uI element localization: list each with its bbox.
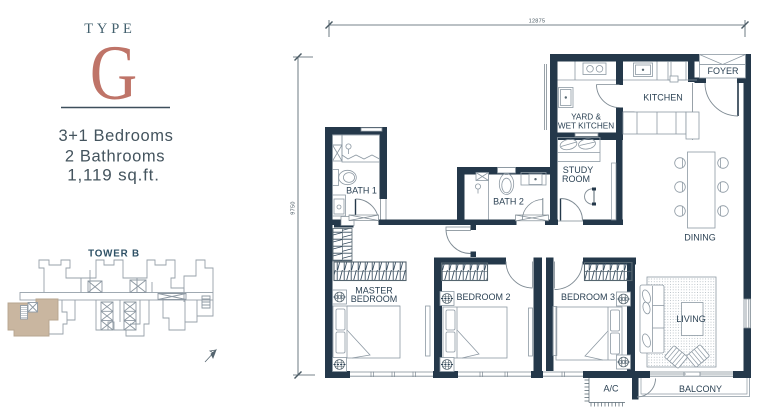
svg-text:A/C: A/C xyxy=(603,384,619,394)
svg-text:LIVING: LIVING xyxy=(676,314,706,324)
svg-text:1,119 sq.ft.: 1,119 sq.ft. xyxy=(67,166,159,185)
svg-text:BEDROOM: BEDROOM xyxy=(351,294,398,304)
svg-text:KITCHEN: KITCHEN xyxy=(643,93,683,103)
svg-text:WET KITCHEN: WET KITCHEN xyxy=(558,122,614,131)
svg-text:BEDROOM 2: BEDROOM 2 xyxy=(456,292,510,302)
svg-text:TOWER B: TOWER B xyxy=(88,249,140,260)
svg-text:FOYER: FOYER xyxy=(707,66,739,76)
svg-text:BATH 2: BATH 2 xyxy=(493,197,524,207)
svg-text:BATH 1: BATH 1 xyxy=(346,186,377,196)
svg-text:BALCONY: BALCONY xyxy=(679,384,722,394)
svg-text:BEDROOM 3: BEDROOM 3 xyxy=(561,292,615,302)
svg-text:DINING: DINING xyxy=(684,233,716,243)
svg-text:G: G xyxy=(90,29,137,116)
svg-text:YARD &: YARD & xyxy=(571,113,601,122)
svg-text:2 Bathrooms: 2 Bathrooms xyxy=(65,148,165,166)
svg-text:9750: 9750 xyxy=(291,201,297,214)
svg-text:3+1 Bedrooms: 3+1 Bedrooms xyxy=(59,127,174,145)
svg-text:ROOM: ROOM xyxy=(562,174,590,184)
svg-text:12875: 12875 xyxy=(529,19,546,25)
